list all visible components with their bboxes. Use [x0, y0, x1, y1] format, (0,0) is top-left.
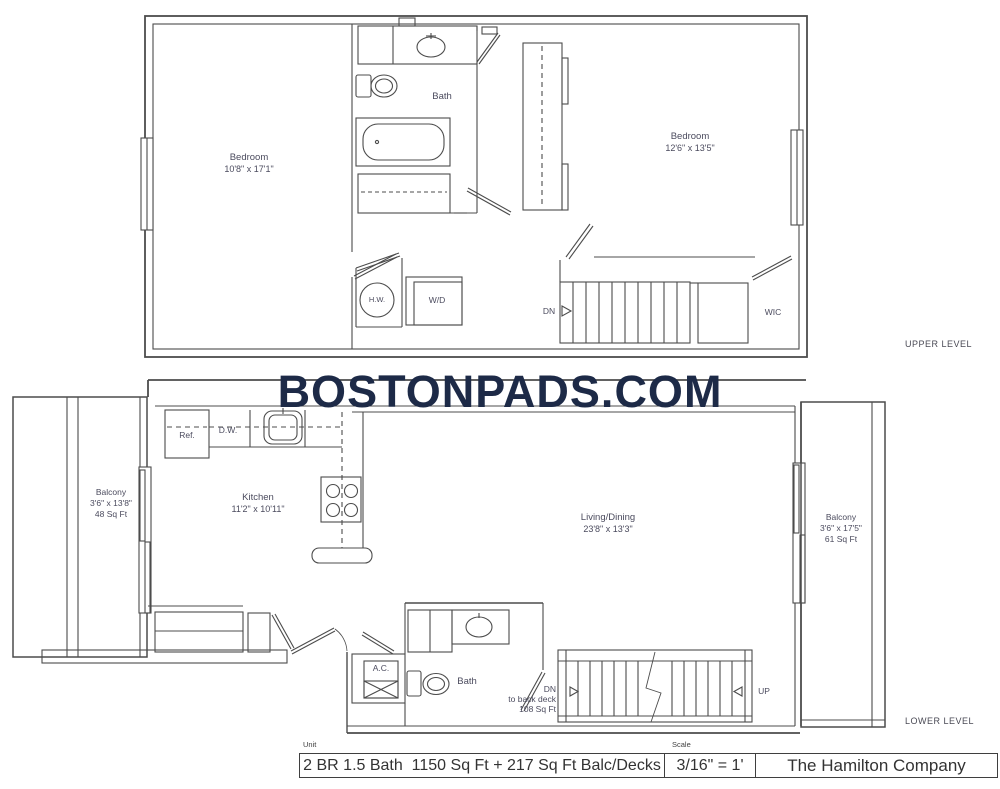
hot-water-heater [356, 253, 402, 327]
footer-unit-value: 2 BR 1.5 Bath 1150 Sq Ft + 217 Sq Ft Bal… [299, 753, 665, 778]
room-label-bath-lower: Bath [457, 676, 477, 688]
label-wic: WIC [765, 307, 782, 318]
ac-unit [352, 654, 405, 703]
window-upper-right [791, 130, 803, 225]
balcony-left-structure [13, 397, 147, 657]
toilet-upper-icon [356, 75, 397, 97]
window-upper-left [141, 138, 153, 230]
peninsula-cap [312, 548, 372, 563]
lower-level-caption: LOWER LEVEL [905, 716, 974, 726]
door-hall-upper [454, 188, 511, 215]
stairs-lower [558, 650, 752, 722]
label-refrigerator: Ref. [179, 430, 195, 441]
room-label-bedroom-right: Bedroom 12'6" x 13'5" [665, 131, 714, 155]
footer-company: The Hamilton Company [755, 753, 998, 778]
entry-door [291, 628, 347, 654]
dn-arrow-lower-icon [570, 687, 578, 696]
entry-closet-2 [248, 613, 270, 652]
label-ac: A.C. [373, 663, 390, 674]
slider-door-left [139, 467, 151, 613]
closet-upper [698, 283, 748, 343]
slider-door-right [793, 463, 805, 603]
closet-shaft [523, 43, 568, 210]
dn-arrow-upper-icon [562, 306, 571, 316]
stairs-upper [560, 260, 690, 343]
up-arrow-icon [734, 687, 742, 696]
label-washer-dryer: W/D [429, 295, 446, 306]
entry-closet [155, 612, 243, 652]
label-dn-back-deck: DN to back deck 108 Sq Ft [494, 684, 556, 715]
door-closet-entry [272, 614, 294, 649]
room-label-kitchen: Kitchen 11'2" x 10'11" [231, 492, 284, 516]
footer-unit-label: Unit [303, 740, 316, 749]
label-dishwasher: D.W. [219, 425, 237, 436]
balcony-right-structure [801, 402, 885, 727]
upper-level-caption: UPPER LEVEL [905, 339, 972, 349]
sink-upper-icon [417, 33, 445, 57]
room-label-balcony-left: Balcony 3'6" x 13'8" 48 Sq Ft [90, 487, 132, 520]
room-label-balcony-right: Balcony 3'6" x 17'5" 61 Sq Ft [820, 512, 862, 545]
door-bedroom-right [566, 224, 593, 259]
door-wic [752, 256, 792, 280]
footer-scale-label: Scale [672, 740, 691, 749]
toilet-lower-icon [407, 671, 449, 696]
bathtub-icon [356, 118, 450, 166]
room-label-bedroom-left: Bedroom 10'8" x 17'1" [224, 152, 273, 176]
door-hall-lower [362, 632, 394, 654]
brand-watermark: BOSTONPADS.COM [278, 366, 723, 418]
upper-level-plan [141, 16, 807, 357]
label-hot-water: H.W. [369, 295, 385, 305]
room-label-living-dining: Living/Dining 23'8" x 13'3" [581, 512, 635, 536]
lower-level-plan [13, 380, 885, 733]
door-bath-upper [477, 27, 500, 64]
stove-icon [321, 477, 361, 522]
footer-scale-value: 3/16" = 1' [664, 753, 756, 778]
floor-plan-page: BOSTONPADS.COM Bedroom 10'8" x 17'1" Bed… [0, 0, 1000, 789]
label-dn-upper: DN [543, 306, 555, 317]
sink-lower-icon [452, 610, 509, 644]
room-label-bath-upper: Bath [432, 91, 452, 103]
label-up: UP [758, 686, 770, 697]
